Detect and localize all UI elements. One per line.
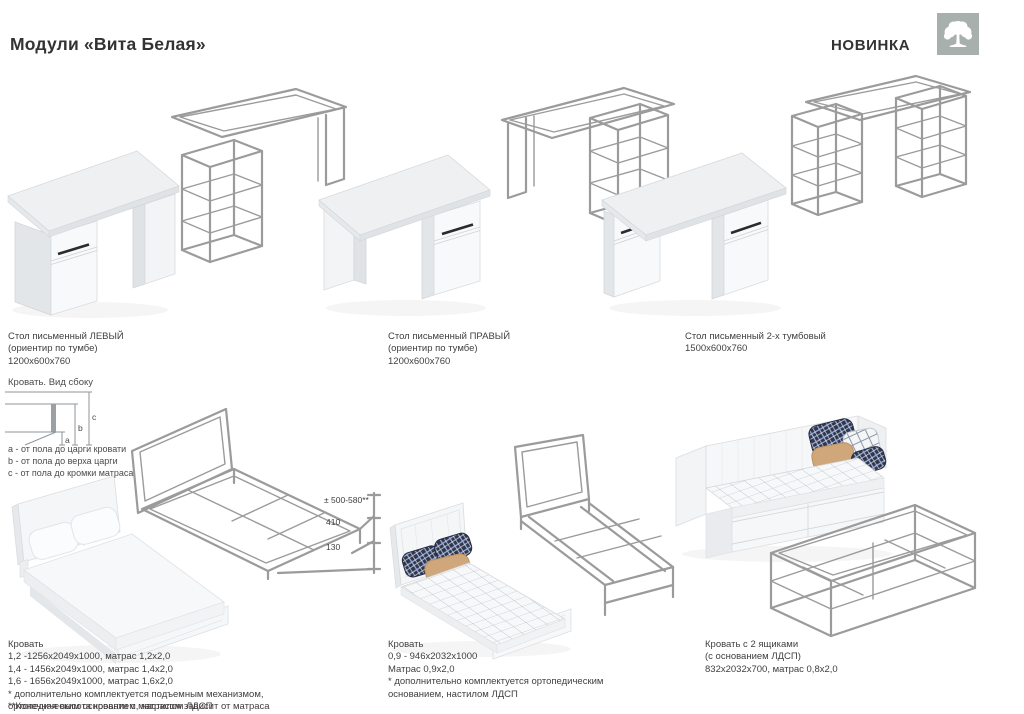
bed-caption-line: 1,6 - 1656x2049x1000, матрас 1,6x2,0: [8, 676, 264, 688]
sideview-diagram: a b c: [5, 388, 115, 450]
bed-caption-line: Кровать с 2 ящиками: [705, 639, 838, 651]
new-badge: НОВИНКА: [831, 37, 910, 54]
legend-line-a: a - от пола до царги кровати: [8, 443, 133, 455]
desk-caption-line: (ориентир по тумбе): [388, 343, 510, 355]
desk-caption-line: 1200x600x760: [388, 356, 510, 368]
bed-dim-label-1: ± 500-580**: [324, 495, 370, 505]
dim-label-c: c: [92, 412, 97, 422]
desk-left-illustration: [5, 147, 195, 322]
bed-caption-line: Кровать: [8, 639, 264, 651]
legend-line-b: b - от пола до верха царги: [8, 455, 133, 467]
bed-caption-line: основанием, настилом ЛДСП: [388, 689, 603, 701]
desk-caption-line: (ориентир по тумбе): [8, 343, 124, 355]
tree-icon: [937, 13, 979, 55]
bed-caption-line: 832x2032x700, матрас 0,8x2,0: [705, 664, 838, 676]
desk-caption-line: 1200x600x760: [8, 356, 124, 368]
desk-leg-side: [133, 204, 145, 288]
desk-right-illustration: [316, 148, 506, 320]
bed-dim-label-2: 410: [326, 517, 340, 527]
desk-caption-line: Стол письменный ПРАВЫЙ: [388, 331, 510, 343]
bed-footnote: **Конечная высота кровати с матрасом зав…: [8, 701, 270, 713]
desk-caption-line: Стол письменный 2-х тумбовый: [685, 331, 826, 343]
bed-caption-line: 0,9 - 946x2032x1000: [388, 651, 603, 663]
bed-caption-line: Матрас 0,9x2,0: [388, 664, 603, 676]
daybed-side-panel: [676, 446, 706, 526]
bed-caption-line: * дополнительно комплектуется подъемным …: [8, 689, 264, 701]
bed-caption-line: 1,2 -1256x2049x1000, матрас 1,2x2,0: [8, 651, 264, 663]
desk-double-wireframe: [788, 58, 974, 224]
desk-caption-1: Стол письменный ЛЕВЫЙ (ориентир по тумбе…: [8, 331, 124, 368]
desk-caption-line: Стол письменный ЛЕВЫЙ: [8, 331, 124, 343]
desk-caption-3: Стол письменный 2-х тумбовый 1500x600x76…: [685, 331, 826, 356]
desk-double-illustration: [600, 148, 800, 320]
bed-caption-line: Кровать: [388, 639, 603, 651]
bed-caption-line: (с основанием ЛДСП): [705, 651, 838, 663]
bed-dim-label-3: 130: [326, 542, 340, 552]
catalog-page: Модули «Вита Белая» НОВИНКА: [0, 0, 1024, 714]
desk-caption-line: 1500x600x760: [685, 343, 826, 355]
desk-cabinet-front: [724, 200, 768, 295]
desk-caption-2: Стол письменный ПРАВЫЙ (ориентир по тумб…: [388, 331, 510, 368]
bed-caption-line: * дополнительно комплектуется ортопедиче…: [388, 676, 603, 688]
bed-caption-line: 1,4 - 1456x2049x1000, матрас 1,4x2,0: [8, 664, 264, 676]
bed-single-illustration: [381, 491, 581, 661]
bed-caption-3: Кровать с 2 ящиками (с основанием ЛДСП) …: [705, 639, 838, 676]
desk-cabinet-front: [434, 201, 480, 295]
page-title: Модули «Вита Белая»: [10, 34, 206, 55]
bed-caption-2: Кровать 0,9 - 946x2032x1000 Матрас 0,9x2…: [388, 639, 603, 701]
desk-cabinet-front: [51, 221, 97, 315]
sideview-title: Кровать. Вид сбоку: [8, 377, 93, 388]
bed-drawers-wireframe: [765, 485, 981, 653]
dim-label-b: b: [78, 423, 83, 433]
